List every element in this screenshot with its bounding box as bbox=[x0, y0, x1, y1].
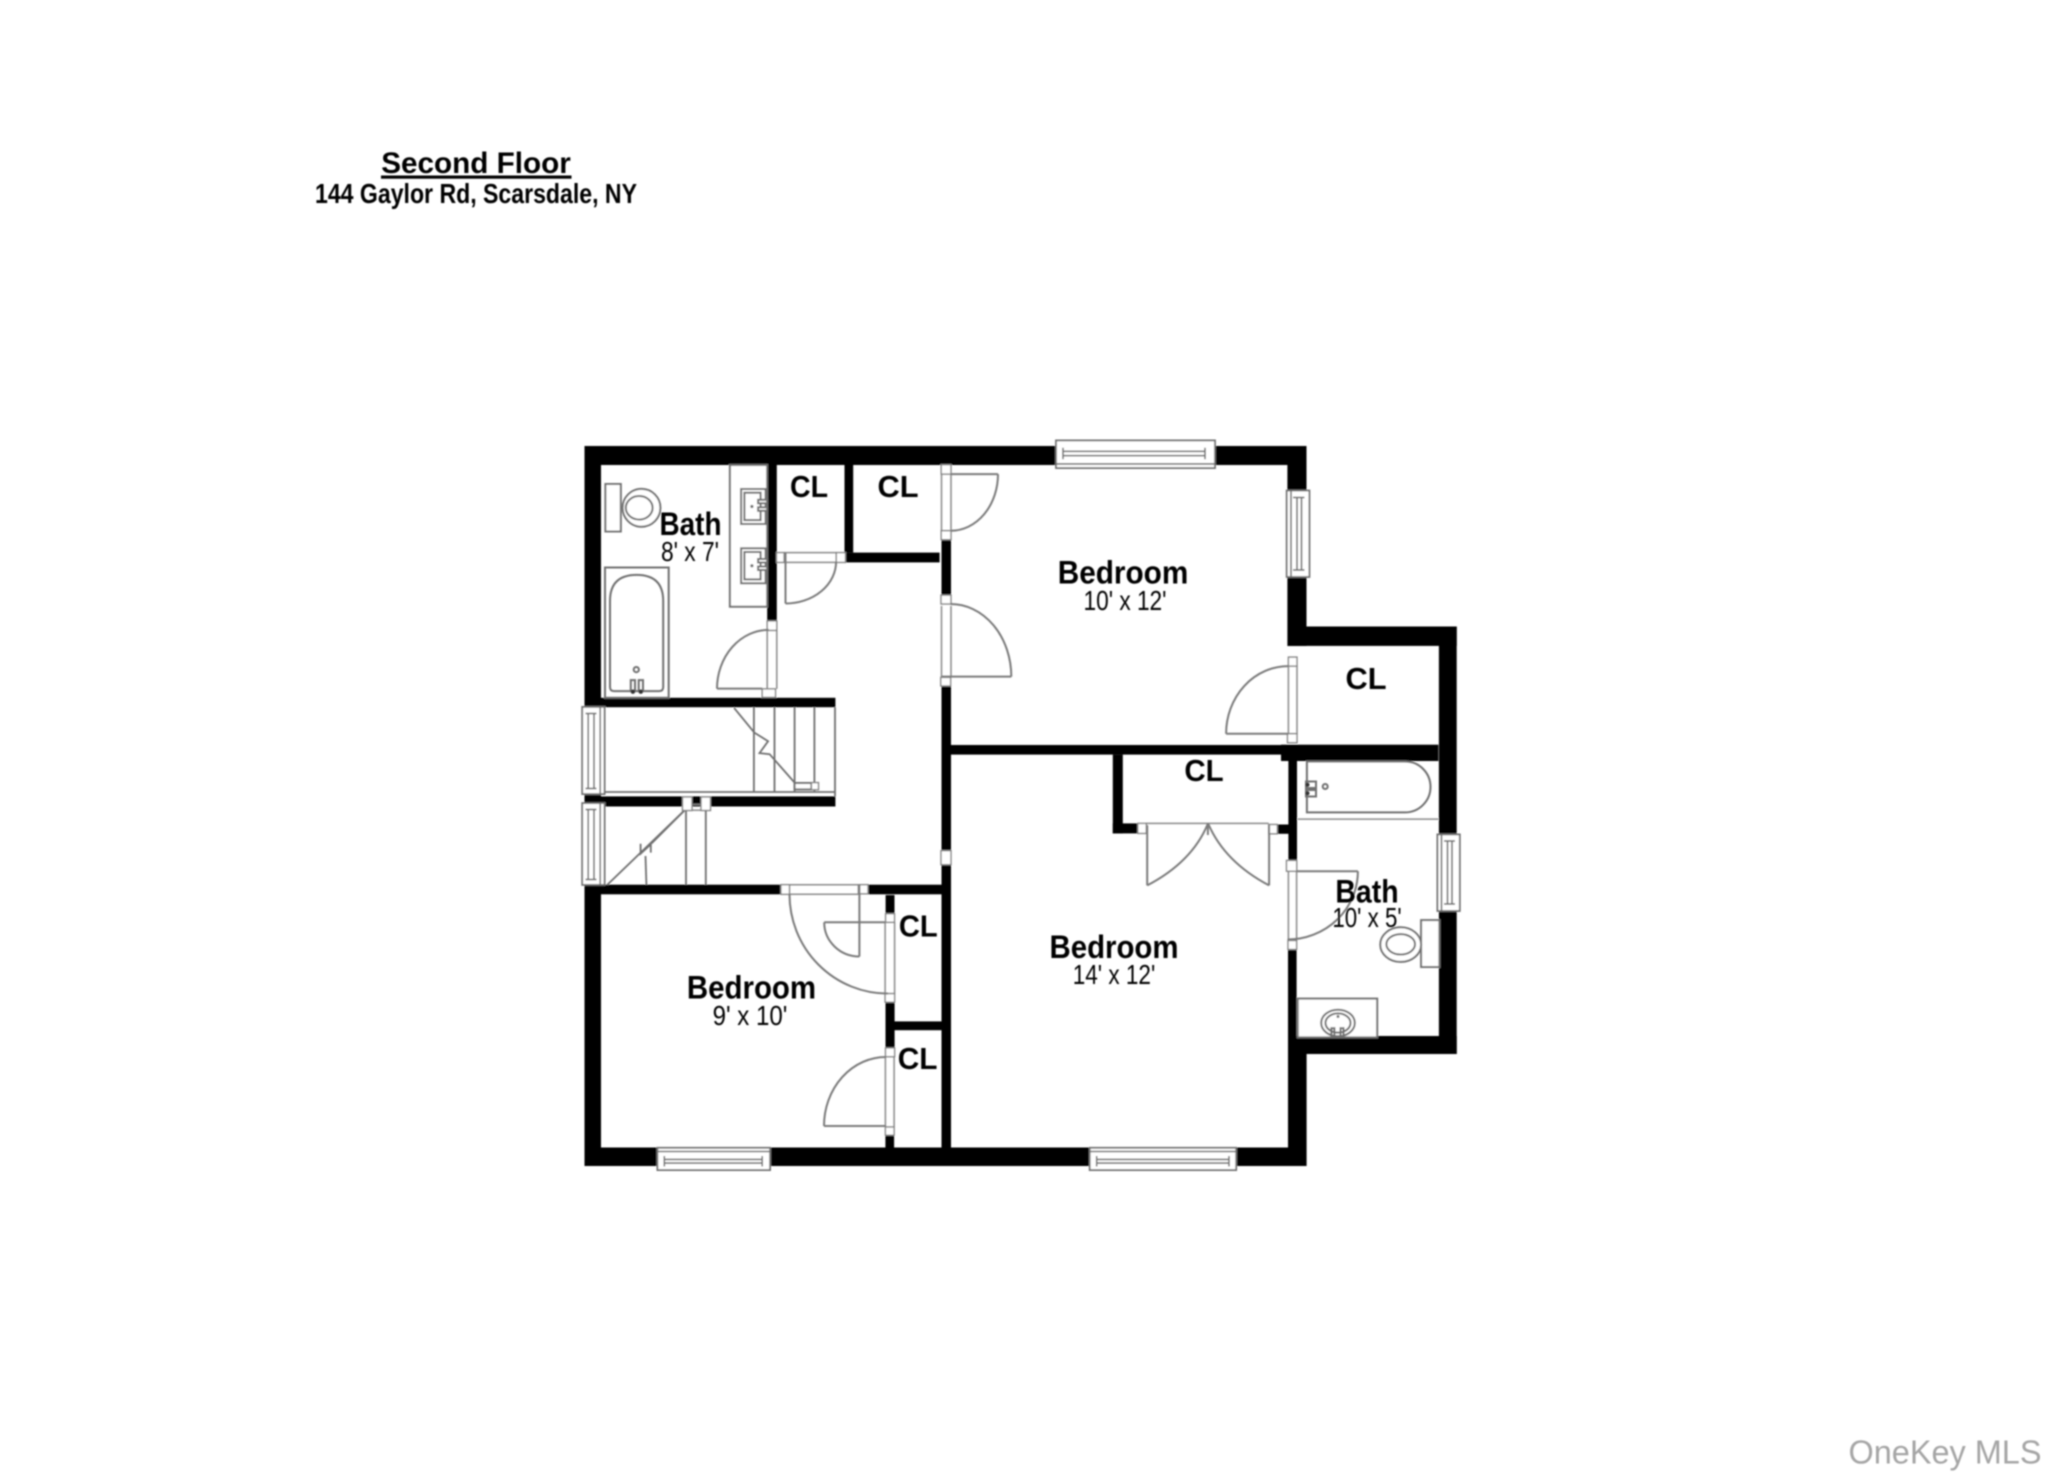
svg-text:14' x 12': 14' x 12' bbox=[1073, 959, 1156, 990]
svg-text:10' x 5': 10' x 5' bbox=[1332, 902, 1401, 933]
svg-text:8' x 7': 8' x 7' bbox=[661, 536, 719, 567]
svg-text:CL: CL bbox=[1346, 661, 1387, 696]
svg-text:CL: CL bbox=[899, 909, 938, 944]
svg-text:Second Floor: Second Floor bbox=[381, 147, 571, 180]
svg-text:CL: CL bbox=[878, 469, 919, 504]
svg-text:144 Gaylor Rd, Scarsdale, NY: 144 Gaylor Rd, Scarsdale, NY bbox=[315, 178, 637, 209]
svg-text:CL: CL bbox=[898, 1041, 938, 1076]
svg-text:10' x 12': 10' x 12' bbox=[1084, 585, 1167, 616]
svg-text:CL: CL bbox=[790, 469, 828, 504]
svg-text:CL: CL bbox=[1184, 753, 1223, 788]
svg-text:OneKey MLS: OneKey MLS bbox=[1849, 1435, 2042, 1472]
svg-text:9' x 10': 9' x 10' bbox=[713, 1000, 788, 1031]
